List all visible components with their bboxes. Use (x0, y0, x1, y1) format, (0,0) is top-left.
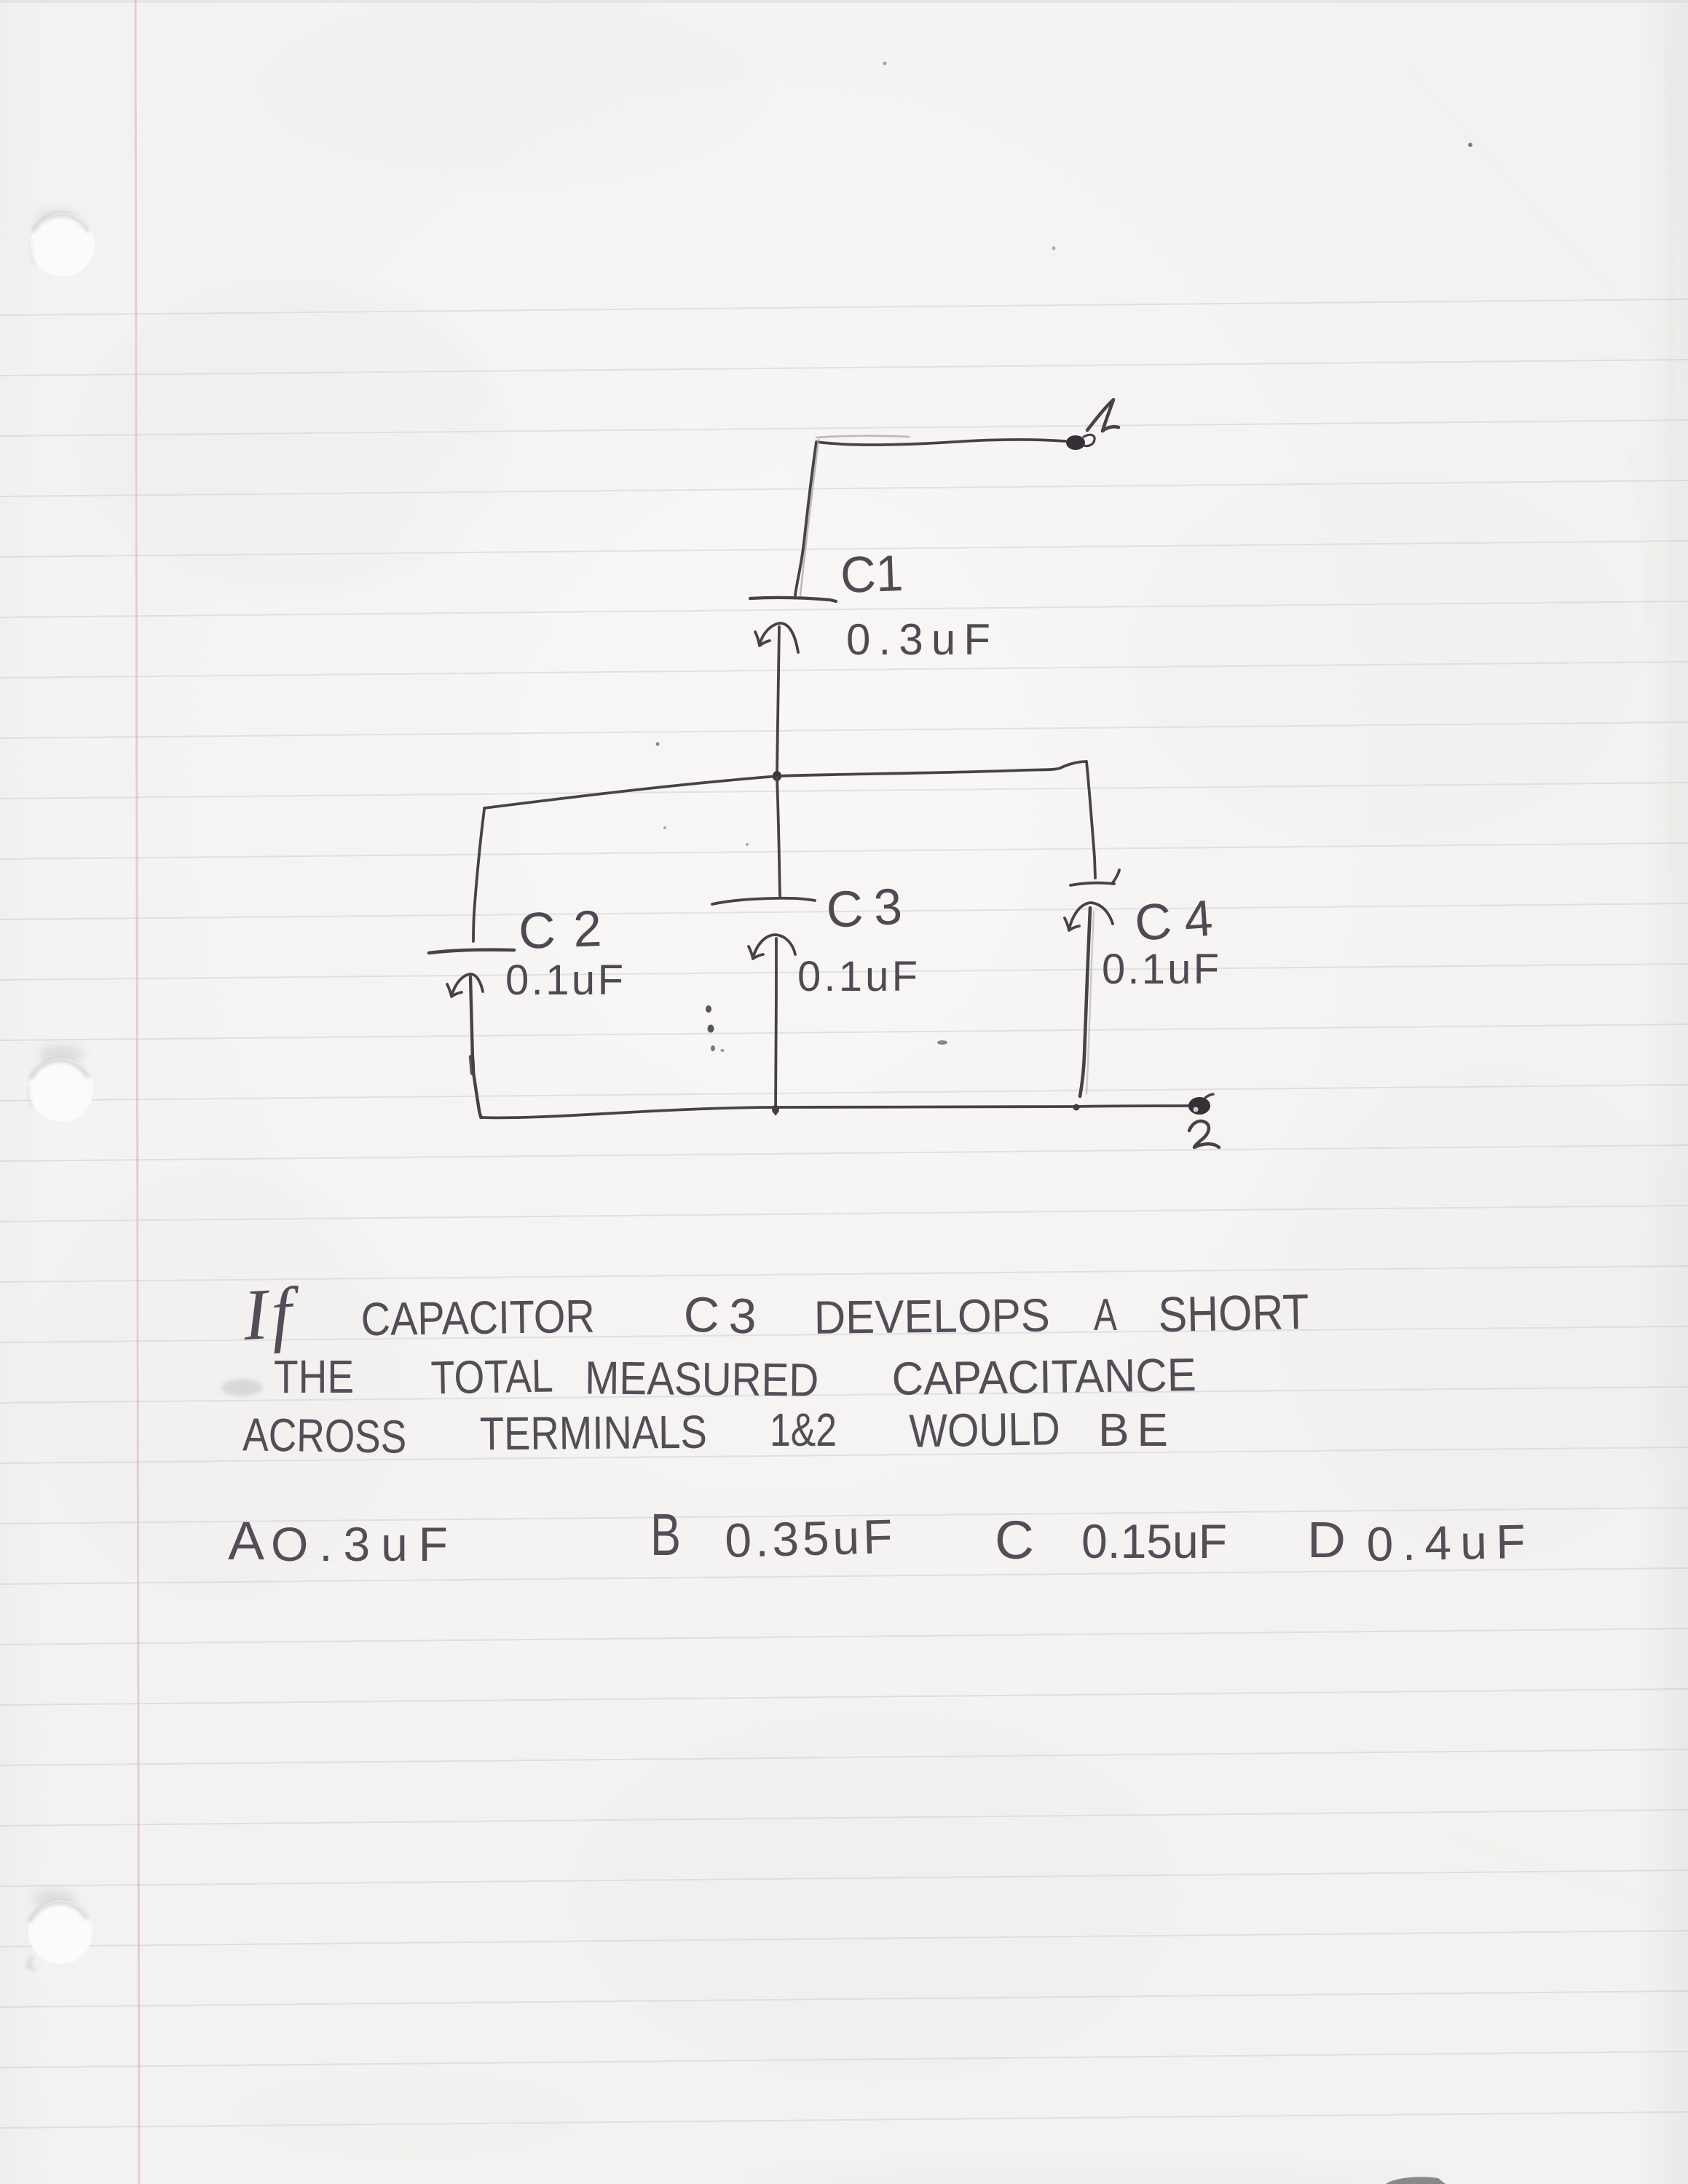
svg-text:0.35uF: 0.35uF (724, 1509, 893, 1567)
svg-text:D: D (1307, 1511, 1346, 1568)
svg-text:O.3uF: O.3uF (271, 1517, 448, 1571)
svg-text:0.1uF: 0.1uF (505, 957, 623, 1004)
svg-text:CAPACITOR: CAPACITOR (360, 1290, 595, 1345)
svg-text:C3: C3 (825, 878, 904, 938)
svg-text:WOULD: WOULD (909, 1402, 1060, 1457)
svg-text:TERMINALS: TERMINALS (479, 1406, 707, 1460)
svg-text:SHORT: SHORT (1158, 1284, 1310, 1342)
svg-text:ACROSS: ACROSS (242, 1408, 407, 1463)
svg-text:1&2: 1&2 (770, 1404, 837, 1456)
svg-text:0.15uF: 0.15uF (1081, 1514, 1227, 1568)
svg-text:CAPACITANCE: CAPACITANCE (891, 1348, 1196, 1405)
svg-text:C1: C1 (840, 545, 904, 604)
svg-text:0.3uF: 0.3uF (846, 615, 990, 664)
svg-text:A: A (1094, 1290, 1117, 1340)
svg-text:If: If (240, 1272, 302, 1356)
svg-text:TOTAL: TOTAL (430, 1350, 553, 1404)
svg-text:A: A (228, 1511, 265, 1571)
svg-text:C2: C2 (518, 900, 603, 960)
svg-text:0.1uF: 0.1uF (797, 953, 918, 1000)
svg-text:BE: BE (1098, 1404, 1168, 1456)
svg-text:C4: C4 (1133, 890, 1215, 951)
svg-text:DEVELOPS: DEVELOPS (813, 1289, 1050, 1343)
svg-text:THE: THE (274, 1350, 354, 1403)
svg-text:C: C (995, 1510, 1034, 1570)
svg-text:0.1uF: 0.1uF (1102, 946, 1219, 993)
svg-text:B: B (650, 1502, 681, 1568)
svg-text:MEASURED: MEASURED (585, 1351, 819, 1406)
svg-text:0.4uF: 0.4uF (1366, 1514, 1526, 1571)
